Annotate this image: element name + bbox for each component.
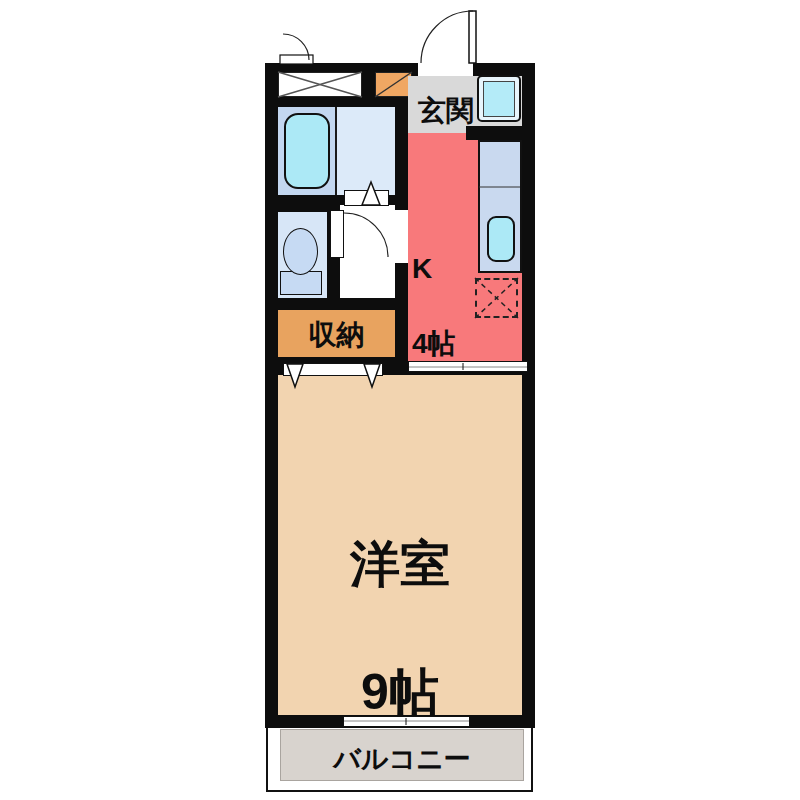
bathroom-floor xyxy=(335,107,395,195)
entrance-door-swing xyxy=(421,11,473,63)
hallway-kitchen-opening xyxy=(395,210,408,263)
refrigerator-space xyxy=(475,278,518,318)
balcony-label: バルコニー xyxy=(280,742,524,777)
kitchen-sink xyxy=(487,216,515,262)
western-room-label: 洋室 9帖 xyxy=(278,468,522,724)
toilet-bowl xyxy=(283,228,318,275)
floor-plan: 玄関 K 4帖 収納 洋室 9帖 バルコニー xyxy=(0,0,800,800)
meter-box xyxy=(278,72,362,97)
kitchen-abbr: K xyxy=(412,253,432,284)
shoe-cabinet xyxy=(375,72,412,97)
bathroom-door xyxy=(344,190,389,206)
hallway xyxy=(340,205,395,298)
toilet-door-leaf xyxy=(330,210,344,258)
closet-folding-door xyxy=(283,363,383,376)
western-room-size: 9帖 xyxy=(361,664,439,720)
storage-label: 収納 xyxy=(278,317,395,353)
western-room-name: 洋室 xyxy=(350,536,450,592)
entrance-label: 玄関 xyxy=(410,93,482,129)
kitchen-size: 4帖 xyxy=(412,328,456,359)
entrance-door-leaf xyxy=(469,11,476,63)
service-door-swing xyxy=(283,34,309,60)
bathtub xyxy=(284,113,330,189)
washing-machine-pan xyxy=(483,81,515,117)
kitchen-label: K 4帖 xyxy=(412,212,472,363)
